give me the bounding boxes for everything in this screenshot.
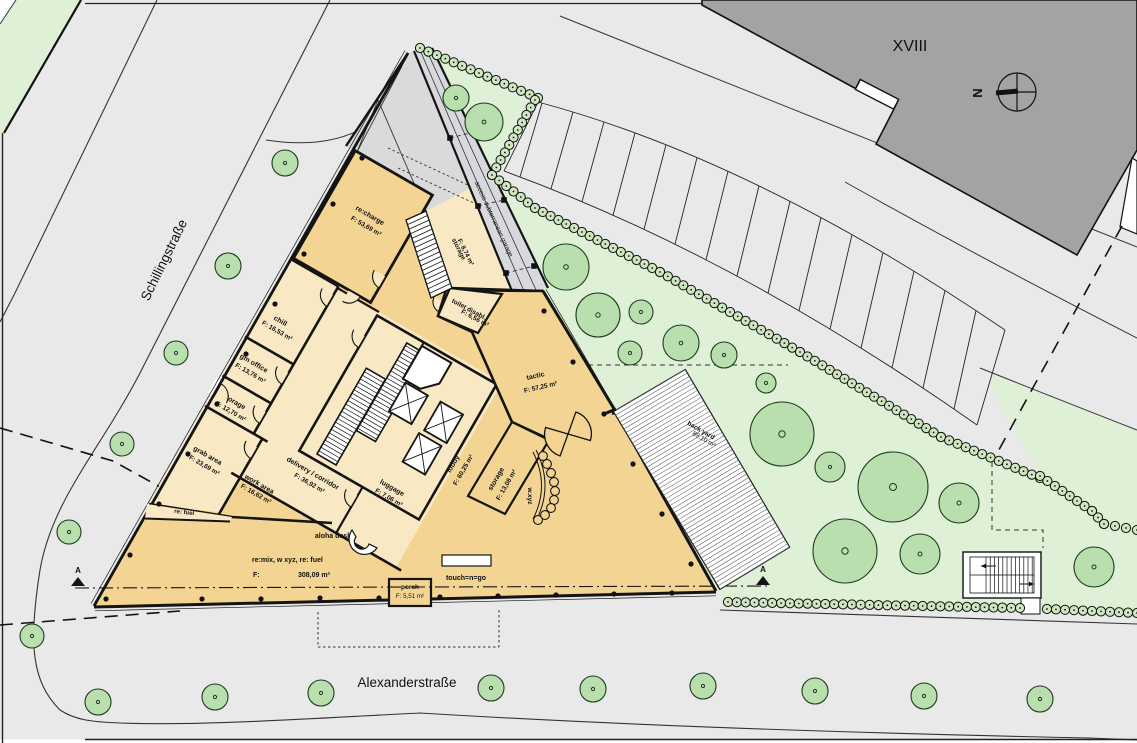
svg-text:aloha desk: aloha desk <box>315 533 351 540</box>
svg-text:F: 5,51 m²: F: 5,51 m² <box>396 593 424 600</box>
svg-text:XVIII: XVIII <box>893 38 928 55</box>
svg-text:A: A <box>75 566 81 575</box>
svg-text:F:: F: <box>253 572 260 579</box>
svg-text:Alexanderstraße: Alexanderstraße <box>357 675 456 690</box>
svg-text:A: A <box>760 565 766 574</box>
svg-text:re:mix, w xyz, re: fuel: re:mix, w xyz, re: fuel <box>252 557 323 564</box>
svg-text:308,09 m²: 308,09 m² <box>298 572 331 579</box>
svg-text:touch=n=go: touch=n=go <box>446 575 486 582</box>
svg-text:w.xyz: w.xyz <box>526 486 533 505</box>
svg-text:N: N <box>970 88 985 97</box>
